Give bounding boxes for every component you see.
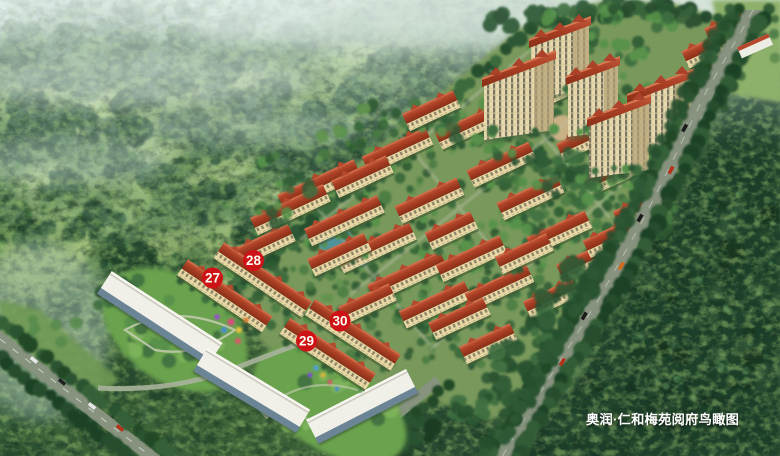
svg-text:28: 28: [246, 253, 262, 268]
svg-text:27: 27: [205, 271, 220, 286]
svg-text:奥润·仁和梅苑阅府鸟瞰图: 奥润·仁和梅苑阅府鸟瞰图: [586, 411, 739, 427]
svg-text:30: 30: [332, 314, 347, 329]
svg-text:29: 29: [299, 334, 314, 349]
